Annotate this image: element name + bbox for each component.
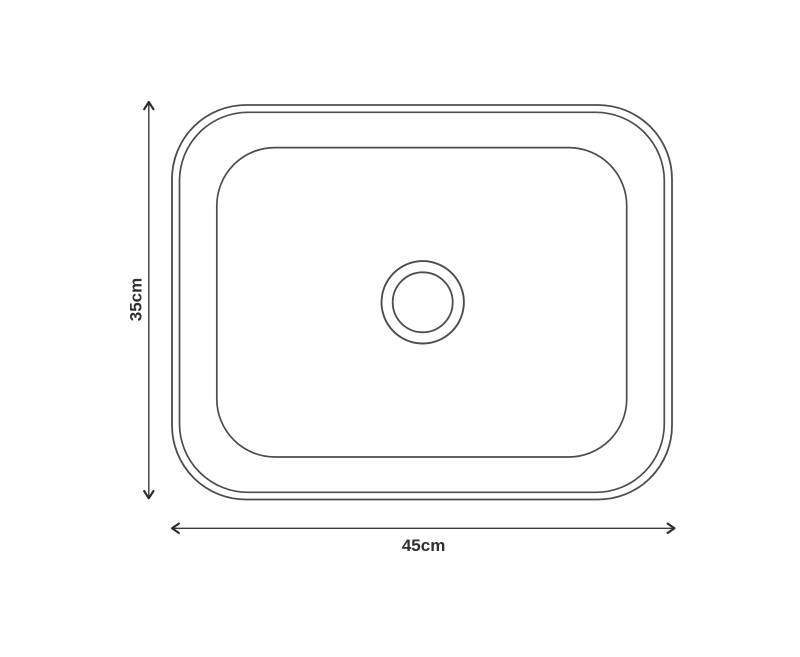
svg-text:45cm: 45cm: [402, 536, 445, 555]
svg-text:35cm: 35cm: [127, 278, 146, 321]
